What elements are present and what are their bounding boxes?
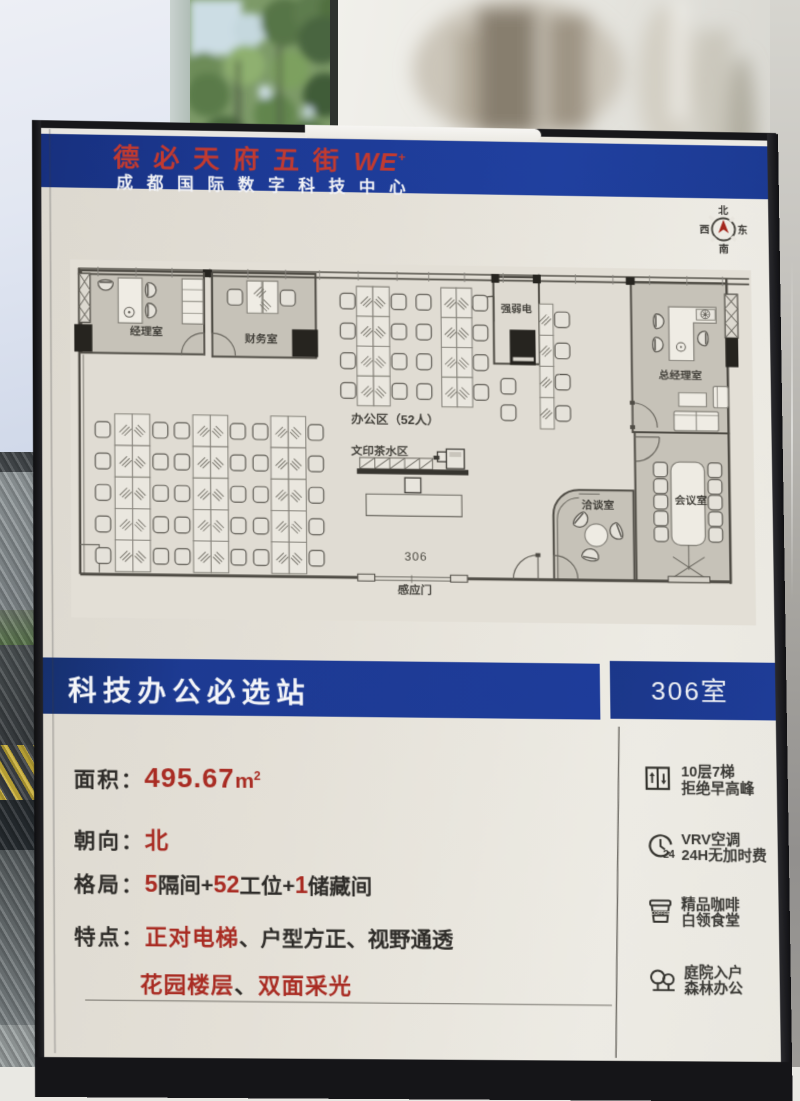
svg-text:COFFEE: COFFEE	[651, 911, 670, 916]
svg-text:24: 24	[663, 850, 675, 861]
